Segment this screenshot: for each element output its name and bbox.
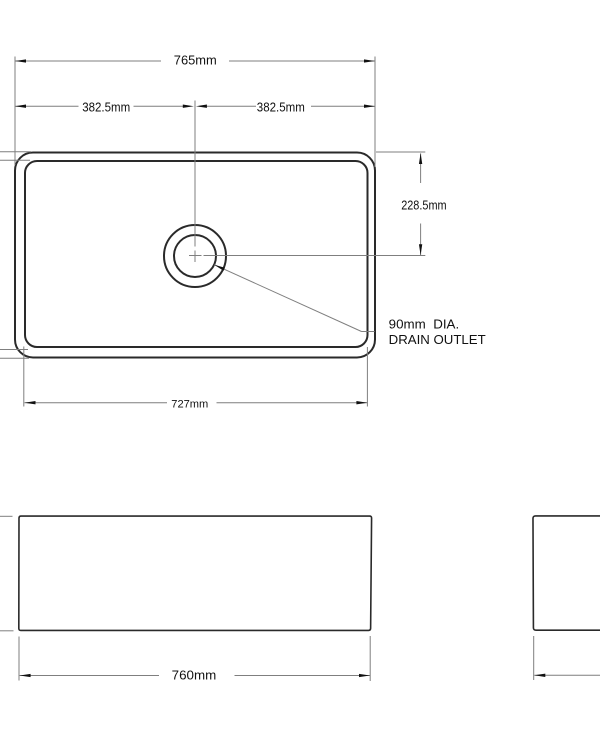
svg-text:760mm: 760mm <box>172 668 217 683</box>
svg-text:90mm DIA.: 90mm DIA. <box>389 316 460 331</box>
svg-text:765mm: 765mm <box>174 52 217 67</box>
svg-text:727mm: 727mm <box>171 398 208 410</box>
svg-text:DRAIN OUTLET: DRAIN OUTLET <box>389 332 486 347</box>
svg-text:228.5mm: 228.5mm <box>401 198 446 212</box>
svg-text:382.5mm: 382.5mm <box>257 99 305 114</box>
svg-text:382.5mm: 382.5mm <box>82 99 130 114</box>
